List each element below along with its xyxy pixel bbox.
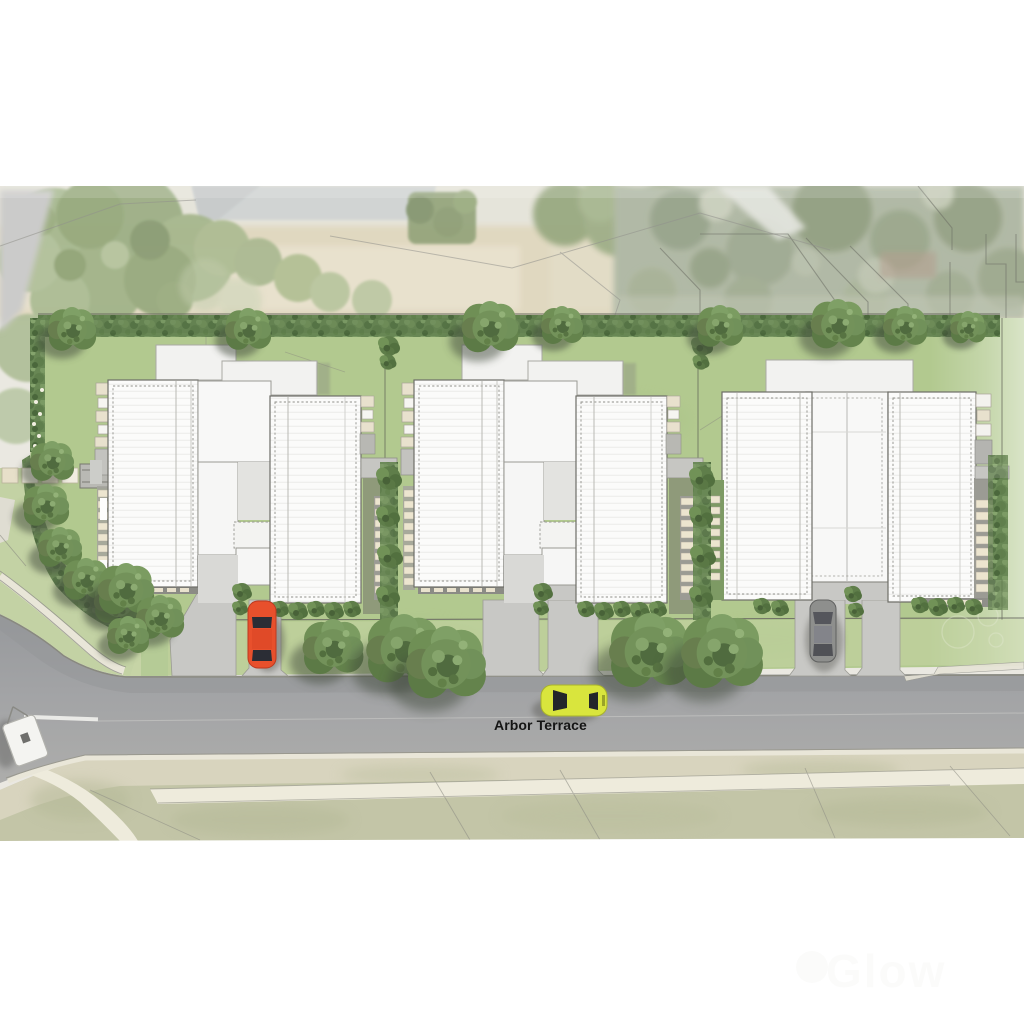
svg-text:Arbor Terrace: Arbor Terrace xyxy=(494,717,587,733)
svg-text:Glow: Glow xyxy=(826,945,946,997)
